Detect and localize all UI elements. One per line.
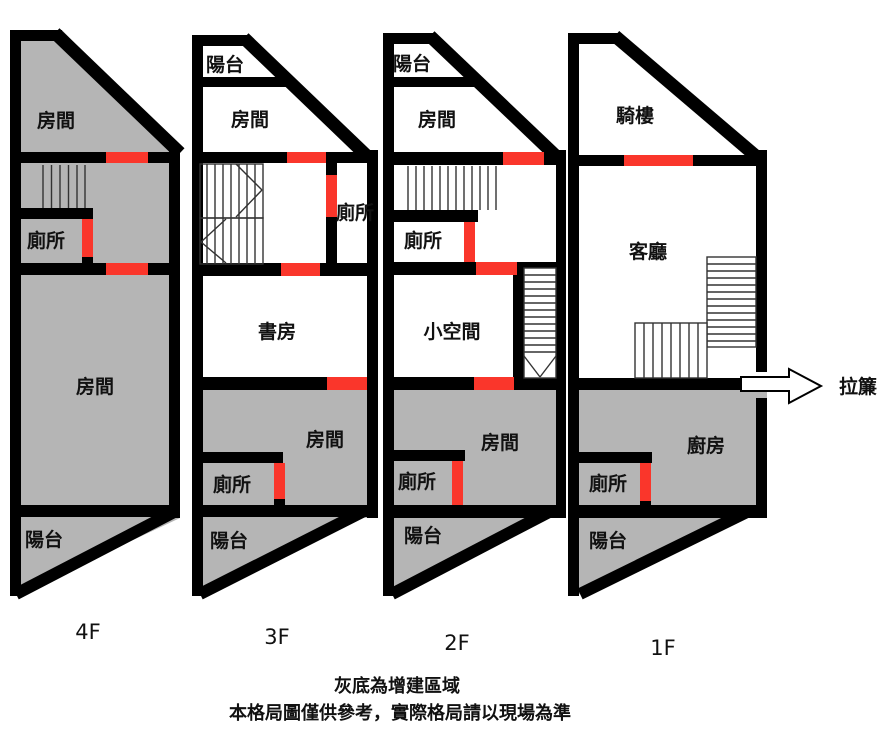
label-2f-toilet-mid: 廁所 <box>404 229 442 252</box>
floor-plan-canvas: 房間 廁所 房間 陽台 4F <box>0 0 889 730</box>
label-4f-toilet: 廁所 <box>27 229 65 252</box>
door-1f-toilet <box>640 463 651 501</box>
floor-label-2f: 2F <box>444 631 469 655</box>
floor-label-3f: 3F <box>264 625 289 649</box>
floor-4f: 房間 廁所 房間 陽台 4F <box>10 30 180 644</box>
label-4f-room-main: 房間 <box>76 375 114 398</box>
floor-2f: 陽台 房間 廁所 小空間 房間 廁所 陽台 2F <box>383 33 566 655</box>
walls-3f <box>192 35 378 596</box>
label-3f-study: 書房 <box>258 320 296 343</box>
door-3f-toilet-low <box>274 463 285 499</box>
door-3f-study <box>327 377 367 390</box>
door-2f-toilet-low <box>452 461 463 505</box>
label-4f-balcony: 陽台 <box>25 528 63 551</box>
label-3f-balcony: 陽台 <box>210 529 248 552</box>
note-line-1: 灰底為增建區域 <box>334 675 460 697</box>
door-4f-main-room <box>106 263 148 275</box>
label-3f-room-top: 房間 <box>231 108 269 131</box>
door-2f-small-space <box>474 377 514 390</box>
label-2f-small-space: 小空間 <box>423 320 480 343</box>
door-2f-hall <box>476 262 517 275</box>
label-2f-balcony: 陽台 <box>404 524 442 547</box>
label-1f-curtain: 拉簾 <box>839 375 877 398</box>
label-3f-balcony-top: 陽台 <box>206 53 244 76</box>
floor-1f: 騎樓 客廳 廚房 廁所 陽台 拉簾 1F <box>568 33 877 660</box>
door-3f-top-room <box>287 152 326 163</box>
door-3f-hall <box>281 263 320 276</box>
door-4f-toilet <box>82 219 93 257</box>
note-line-2: 本格局圖僅供參考，實際格局請以現場為準 <box>229 702 571 724</box>
staircase-1f-lower <box>635 323 707 378</box>
door-2f-toilet-mid <box>464 222 475 262</box>
door-2f-top-room <box>503 152 544 165</box>
label-2f-balcony-top: 陽台 <box>393 52 431 75</box>
door-4f-top-room <box>106 152 148 163</box>
label-1f-toilet: 廁所 <box>589 472 627 495</box>
label-2f-toilet-low: 廁所 <box>398 470 436 493</box>
label-4f-room-top: 房間 <box>37 109 75 132</box>
label-3f-toilet-mid: 廁所 <box>336 201 374 224</box>
floor-plan-diagram: 房間 廁所 房間 陽台 4F <box>0 0 889 730</box>
floor-label-1f: 1F <box>650 636 675 660</box>
staircase-1f-right <box>707 257 756 347</box>
label-1f-arcade: 騎樓 <box>616 104 654 127</box>
label-1f-kitchen: 廚房 <box>687 434 725 457</box>
staircase-3f <box>200 164 263 264</box>
door-1f-entrance <box>624 155 693 166</box>
staircase-2f-down <box>524 268 556 378</box>
floor-label-4f: 4F <box>75 620 100 644</box>
label-2f-room-top: 房間 <box>418 108 456 131</box>
label-3f-toilet-low: 廁所 <box>213 473 251 496</box>
label-2f-room-main: 房間 <box>481 431 519 454</box>
floor-3f: 陽台 房間 廁所 書房 房間 廁所 陽台 3F <box>192 35 378 649</box>
label-1f-balcony: 陽台 <box>589 529 627 552</box>
label-3f-room-main: 房間 <box>306 428 344 451</box>
label-1f-living: 客廳 <box>629 240 667 263</box>
footer-notes: 灰底為增建區域 本格局圖僅供參考，實際格局請以現場為準 <box>229 675 571 724</box>
staircase-2f-mid <box>408 166 496 210</box>
